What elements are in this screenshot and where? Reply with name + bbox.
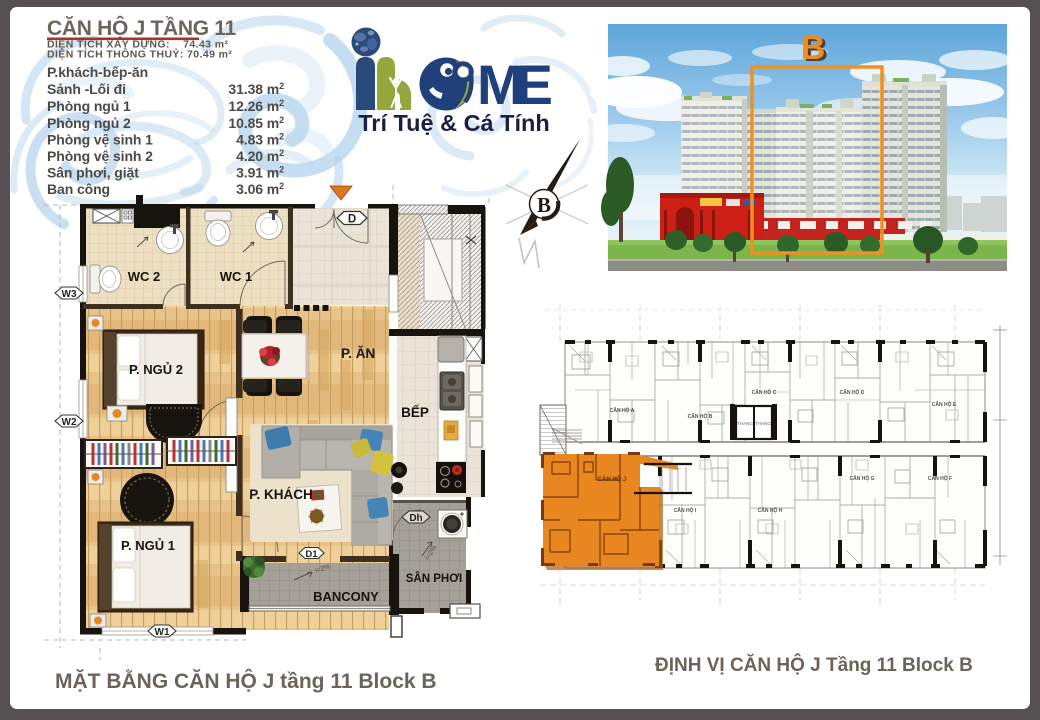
svg-text:CĂN HỘ F: CĂN HỘ F [928, 474, 952, 482]
svg-text:CĂN HỘ A: CĂN HỘ A [610, 406, 635, 414]
svg-text:P. ĂN: P. ĂN [341, 346, 375, 361]
svg-text:3.91 m2: 3.91 m2 [236, 165, 284, 181]
svg-text:P. NGỦ 2: P. NGỦ 2 [129, 362, 183, 377]
svg-text:CĂN HỘ E: CĂN HỘ E [932, 400, 957, 408]
svg-text:WC 1: WC 1 [220, 269, 253, 284]
svg-text:Trí Tuệ & Cá Tính: Trí Tuệ & Cá Tính [358, 110, 550, 136]
svg-text:W3: W3 [62, 289, 77, 300]
svg-text:Sân phơi, giặt: Sân phơi, giặt [47, 165, 139, 181]
svg-text:W1: W1 [155, 627, 170, 638]
svg-text:SÂN PHƠI: SÂN PHƠI [406, 572, 462, 585]
svg-text:CĂN HỘ J: CĂN HỘ J [598, 475, 627, 483]
svg-text:THANG: THANG [755, 421, 771, 426]
svg-text:P. KHÁCH: P. KHÁCH [249, 487, 313, 502]
svg-text:Dh: Dh [409, 513, 422, 524]
svg-text:THANG: THANG [737, 421, 753, 426]
svg-text:Ban công: Ban công [47, 181, 110, 197]
svg-text:B: B [537, 193, 551, 217]
svg-text:Phòng ngủ 1: Phòng ngủ 1 [47, 98, 131, 114]
svg-text:D: D [348, 214, 356, 226]
svg-text:BẾP: BẾP [401, 405, 429, 420]
svg-text:ĐỊNH VỊ CĂN HỘ J Tầng 11 Block: ĐỊNH VỊ CĂN HỘ J Tầng 11 Block B [655, 654, 973, 676]
svg-text:CĂN HỘ D: CĂN HỘ D [840, 388, 865, 396]
svg-text:Phòng vệ sinh 2: Phòng vệ sinh 2 [47, 148, 153, 164]
svg-text:4.20 m2: 4.20 m2 [236, 148, 284, 164]
svg-text:P. NGỦ 1: P. NGỦ 1 [121, 538, 175, 553]
svg-text:BANCONY: BANCONY [313, 589, 379, 604]
svg-text:Phòng vệ sinh 1: Phòng vệ sinh 1 [47, 132, 153, 148]
svg-text:31.38 m2: 31.38 m2 [228, 81, 284, 97]
svg-text:CĂN HỘ G: CĂN HỘ G [850, 474, 875, 482]
svg-text:WC 2: WC 2 [128, 269, 161, 284]
svg-text:MẶT BẰNG CĂN HỘ J tầng 11 Bloc: MẶT BẰNG CĂN HỘ J tầng 11 Block B [55, 669, 437, 693]
svg-text:4.83 m2: 4.83 m2 [236, 132, 284, 148]
svg-text:P.khách-bếp-ăn: P.khách-bếp-ăn [47, 64, 148, 80]
svg-text:W2: W2 [62, 417, 77, 428]
svg-text:10.85 m2: 10.85 m2 [228, 115, 284, 131]
svg-text:CĂN HỘ B: CĂN HỘ B [688, 412, 713, 420]
svg-text:3.06 m2: 3.06 m2 [236, 181, 284, 197]
svg-text:CĂN HỘ I: CĂN HỘ I [674, 506, 697, 514]
svg-text:ME: ME [477, 53, 553, 116]
svg-text:Phòng ngủ 2: Phòng ngủ 2 [47, 115, 131, 131]
svg-text:CĂN HỘ H: CĂN HỘ H [758, 506, 783, 514]
svg-text:D1: D1 [305, 549, 318, 560]
svg-text:DIỆN TÍCH THÔNG THUỶ: 70.49 m²: DIỆN TÍCH THÔNG THUỶ: 70.49 m² [47, 48, 232, 61]
svg-text:12.26 m2: 12.26 m2 [228, 98, 284, 114]
svg-text:Sảnh -Lối đi: Sảnh -Lối đi [47, 81, 126, 97]
svg-text:CĂN HỘ J TẦNG 11: CĂN HỘ J TẦNG 11 [47, 16, 237, 40]
svg-text:B: B [801, 29, 826, 67]
svg-text:CĂN HỘ C: CĂN HỘ C [752, 388, 777, 396]
